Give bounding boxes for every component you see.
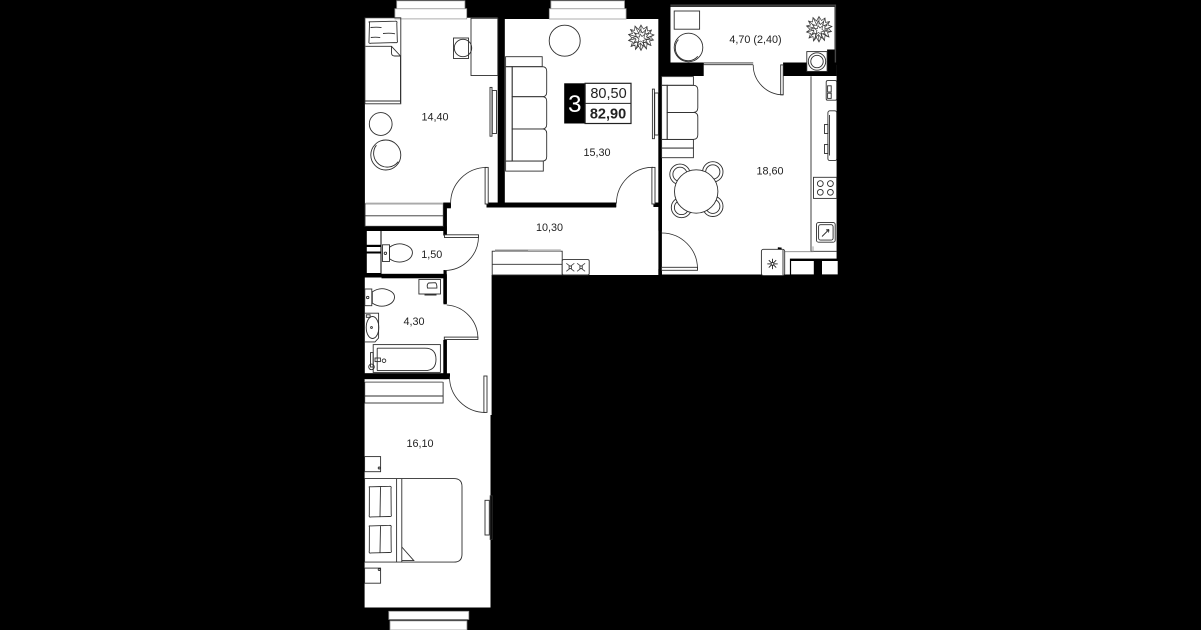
svg-text:10,30: 10,30 — [536, 222, 563, 234]
svg-text:4,30: 4,30 — [403, 316, 424, 328]
svg-text:14,40: 14,40 — [421, 112, 448, 124]
svg-text:4,70 (2,40): 4,70 (2,40) — [729, 34, 781, 46]
svg-text:15,30: 15,30 — [583, 147, 610, 159]
svg-text:80,50: 80,50 — [590, 86, 626, 102]
svg-text:82,90: 82,90 — [590, 107, 626, 123]
svg-text:3: 3 — [568, 91, 582, 118]
svg-text:1,50: 1,50 — [421, 249, 442, 261]
svg-text:18,60: 18,60 — [756, 166, 783, 178]
svg-text:16,10: 16,10 — [406, 438, 433, 450]
